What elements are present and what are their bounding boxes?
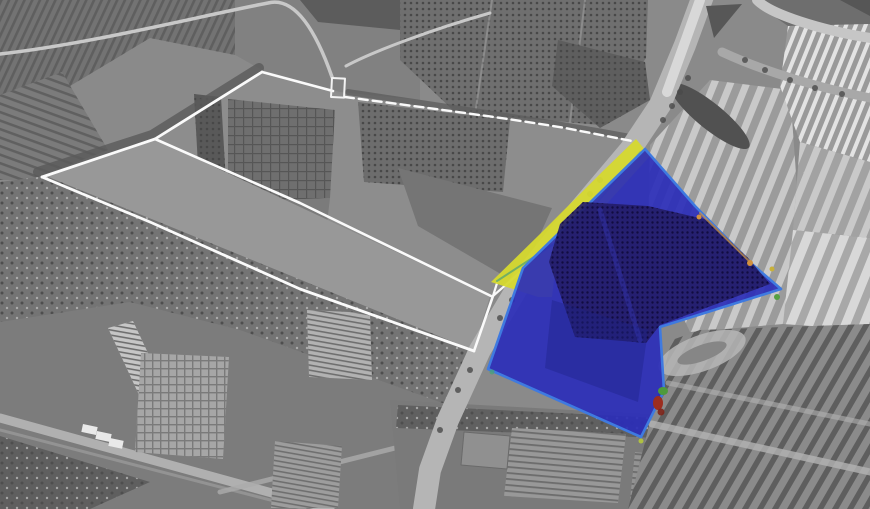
aerial-map-image [0,0,870,509]
roadside-trees-4 [742,57,748,63]
marker-red-dark [658,409,665,416]
warehouse-large-texture [135,353,229,459]
marker-orange-1 [697,215,702,220]
roadside-trees-3 [685,75,691,81]
small-building-center [461,432,510,469]
roadside-trees-5 [762,67,768,73]
warehouse-ribbed-center-texture [504,428,626,503]
roadside-trees-15 [437,427,443,433]
marker-lime-tip [639,439,644,444]
marker-teal-corner [490,370,495,375]
roadside-trees-14 [455,387,461,393]
building-south-texture [271,441,342,508]
roadside-trees-7 [812,85,818,91]
building-ribbed-mid-texture [307,310,372,380]
marker-green-large [658,387,668,395]
roadside-trees-6 [787,77,793,83]
marker-orange-2 [747,260,753,266]
roadside-trees-12 [497,315,503,321]
marker-olive [770,267,775,272]
roadside-trees-13 [467,367,473,373]
marker-green-edge [774,294,780,300]
map-viewport[interactable] [0,0,870,509]
roadside-trees-2 [677,89,683,95]
marker-red [653,396,663,410]
roadside-trees-8 [839,91,845,97]
roadside-trees-1 [669,103,675,109]
strips-low-east-texture [783,230,870,330]
roadside-trees-0 [660,117,666,123]
